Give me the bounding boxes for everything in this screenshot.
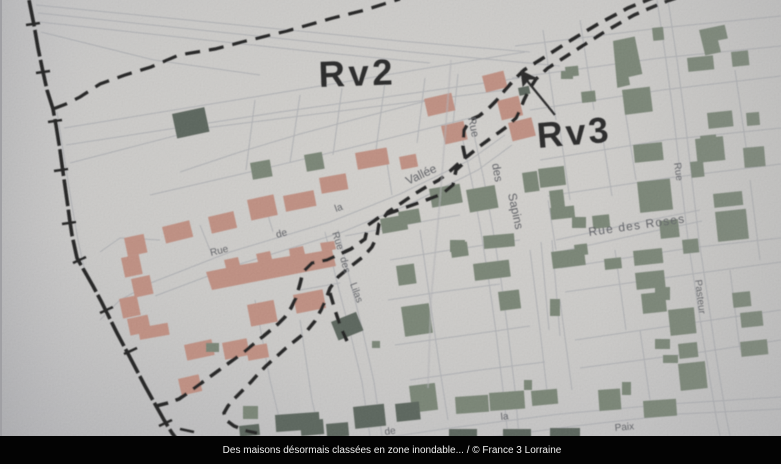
svg-text:Des maisons désormais classées: Des maisons désormais classées en zone i… (223, 445, 562, 456)
